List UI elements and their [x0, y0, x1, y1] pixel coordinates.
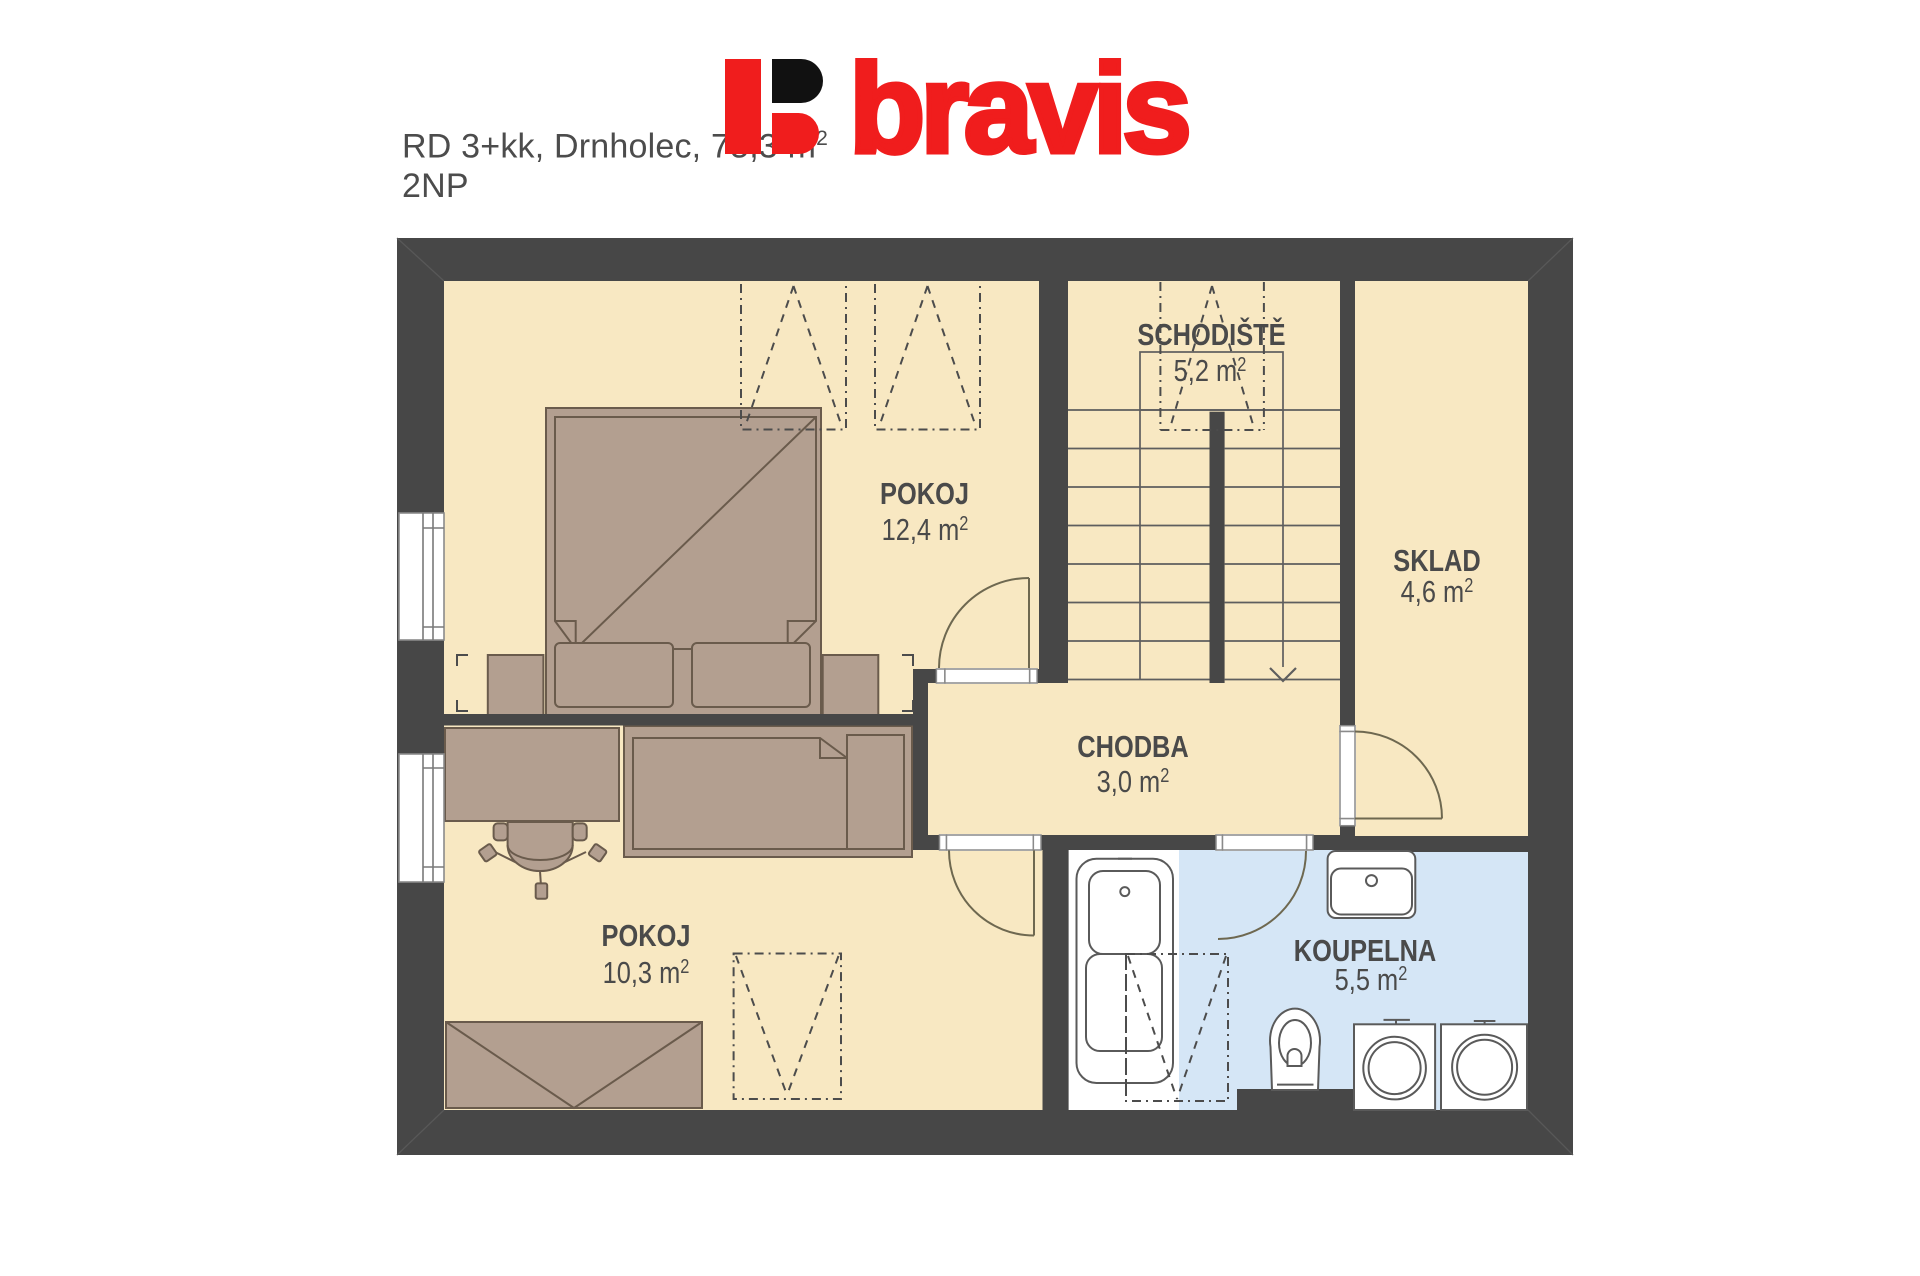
- svg-text:POKOJ: POKOJ: [602, 919, 691, 954]
- svg-text:5,5 m2: 5,5 m2: [1335, 961, 1408, 997]
- svg-text:POKOJ: POKOJ: [880, 477, 969, 512]
- svg-text:SCHODIŠTĚ: SCHODIŠTĚ: [1137, 318, 1285, 353]
- svg-text:10,3 m2: 10,3 m2: [603, 954, 690, 990]
- svg-text:3,0 m2: 3,0 m2: [1097, 763, 1170, 799]
- svg-text:12,4 m2: 12,4 m2: [882, 511, 969, 547]
- svg-text:CHODBA: CHODBA: [1077, 730, 1188, 765]
- svg-text:4,6 m2: 4,6 m2: [1401, 573, 1474, 609]
- svg-text:5,2 m2: 5,2 m2: [1174, 352, 1247, 388]
